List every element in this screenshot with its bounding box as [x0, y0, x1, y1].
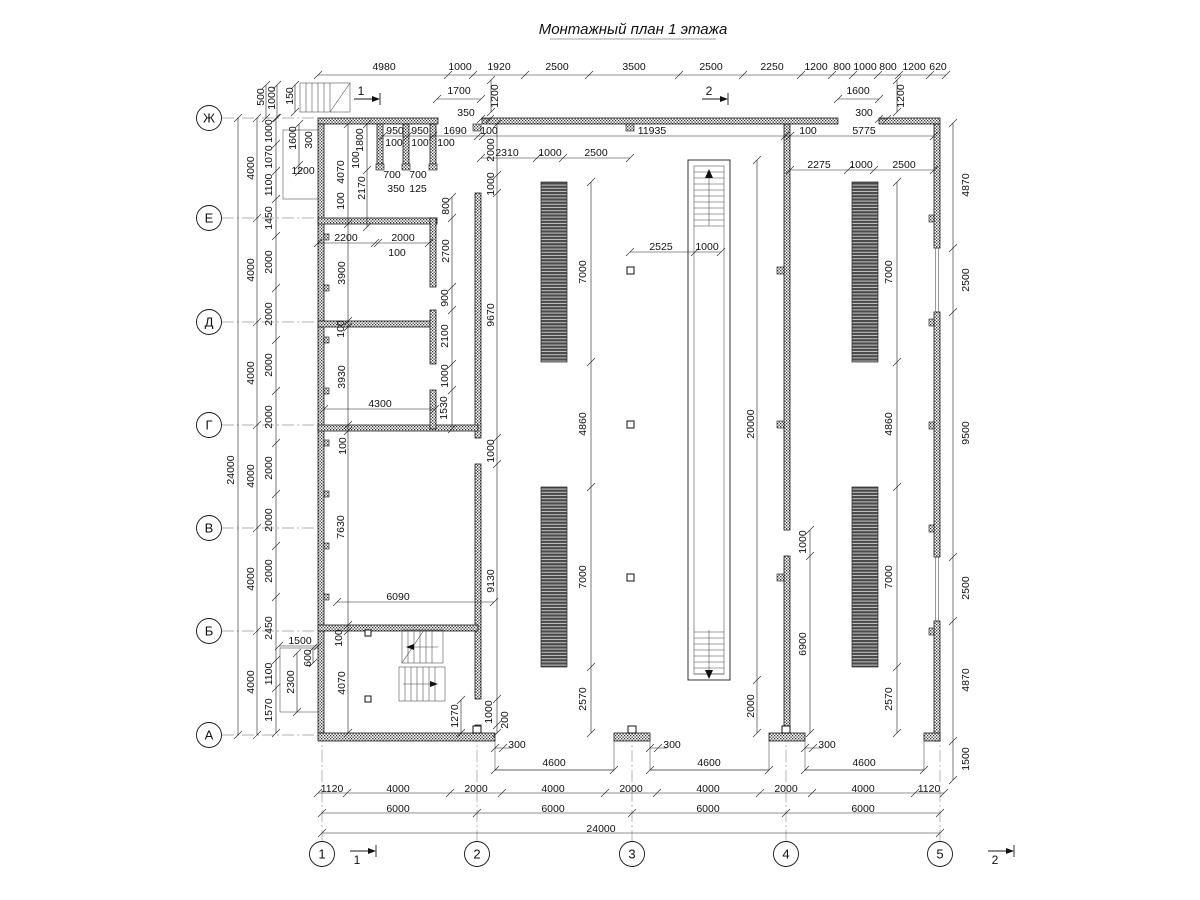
dim-label: 1000 — [485, 172, 497, 196]
dim-label: 4300 — [368, 398, 392, 410]
dim-label: 1200 — [489, 84, 501, 108]
dim-label: 100 — [337, 437, 349, 455]
dim-label: 300 — [508, 739, 526, 751]
dim-label: 950 — [386, 125, 404, 137]
dim-label: 1000 — [448, 61, 472, 73]
dim-label: 3900 — [336, 261, 348, 285]
dim-label: 2500 — [960, 268, 972, 292]
dim-label: 1000 — [483, 700, 495, 724]
pilasters — [324, 124, 934, 635]
dim-label: 100 — [350, 151, 362, 169]
dim-label: 1530 — [438, 396, 450, 420]
dim-label: 2100 — [439, 324, 451, 348]
floor-plan-canvas: Монтажный план 1 этажа — [0, 0, 1200, 900]
dim-label: 4070 — [336, 671, 348, 695]
axis-row-Б-label: Б — [205, 624, 214, 639]
dim-label: 1450 — [263, 206, 275, 230]
stair-down-arrow — [705, 670, 713, 679]
storage-racks — [541, 182, 878, 667]
section-mark-1-bottom: 1 — [350, 845, 376, 867]
dim-label: 7000 — [577, 565, 589, 589]
dim-label: 300 — [303, 131, 315, 149]
dim-label: 7000 — [883, 260, 895, 284]
dim-label: 6000 — [696, 803, 720, 815]
dim-label: 2500 — [584, 147, 608, 159]
rack-left-upper — [541, 182, 567, 362]
axis-col-4-label: 4 — [782, 847, 789, 862]
dim-label: 2500 — [699, 61, 723, 73]
dim-label: 2450 — [263, 616, 275, 640]
dim-label: 2170 — [356, 176, 368, 200]
page-title: Монтажный план 1 этажа — [539, 21, 728, 38]
section-label: 2 — [992, 853, 999, 867]
dim-label: 20000 — [745, 409, 757, 438]
dim-label: 100 — [388, 247, 406, 259]
dim-label: 4070 — [335, 160, 347, 184]
annex-outlines — [280, 130, 318, 712]
dim-label: 4000 — [245, 567, 257, 591]
dim-label: 1000 — [849, 159, 873, 171]
dim-label: 100 — [799, 125, 817, 137]
dim-label: 800 — [833, 61, 851, 73]
dim-label: 200 — [499, 711, 511, 729]
dim-label: 2310 — [495, 147, 519, 159]
dim-label: 2250 — [760, 61, 784, 73]
dim-label: 1070 — [263, 145, 275, 169]
rack-right-upper — [852, 182, 878, 362]
dim-label: 100 — [437, 137, 455, 149]
dim-label: 2300 — [285, 670, 297, 694]
dimension-labels: 4980100019202500350025002250120080010008… — [225, 61, 972, 835]
dim-label: 1200 — [895, 84, 907, 108]
dim-label: 1000 — [266, 86, 278, 110]
internal-stair — [399, 630, 445, 701]
dim-label: 100 — [411, 137, 429, 149]
dim-label: 6000 — [541, 803, 565, 815]
dim-label: 11935 — [638, 125, 667, 137]
dim-label: 2700 — [440, 239, 452, 263]
dim-label: 4000 — [245, 464, 257, 488]
axis-row-Е-label: Е — [205, 211, 214, 226]
dim-label: 4600 — [852, 757, 876, 769]
dim-label: 2000 — [485, 138, 497, 162]
central-shaft — [688, 160, 730, 680]
axis-bubbles: ЖЕДГВБА12345 — [197, 106, 953, 867]
dim-label: 2000 — [263, 456, 275, 480]
dim-label: 4870 — [960, 668, 972, 692]
dim-label: 300 — [855, 107, 873, 119]
dim-label: 5775 — [852, 125, 876, 137]
dim-label: 1200 — [902, 61, 926, 73]
dim-label: 300 — [663, 739, 681, 751]
dim-label: 2000 — [263, 508, 275, 532]
dim-label: 4600 — [697, 757, 721, 769]
dim-label: 100 — [333, 629, 345, 647]
dim-label: 2570 — [577, 687, 589, 711]
axis-row-А-label: А — [205, 728, 214, 743]
dim-label: 100 — [335, 192, 347, 210]
dim-label: 2000 — [263, 250, 275, 274]
dim-label: 1120 — [321, 783, 344, 795]
dim-label: 3500 — [622, 61, 646, 73]
dim-label: 4000 — [245, 156, 257, 180]
rack-left-lower — [541, 487, 567, 667]
dim-label: 800 — [879, 61, 897, 73]
dim-label: 1000 — [695, 241, 719, 253]
dim-label: 620 — [929, 61, 947, 73]
dim-label: 700 — [383, 169, 401, 181]
axis-col-3-label: 3 — [628, 847, 635, 862]
dim-label: 100 — [335, 320, 347, 338]
dim-label: 100 — [480, 125, 498, 137]
dim-label: 6900 — [797, 632, 809, 656]
dim-label: 2500 — [892, 159, 916, 171]
dim-label: 4870 — [960, 173, 972, 197]
dim-label: 1700 — [447, 85, 471, 97]
dim-label: 3930 — [336, 365, 348, 389]
dim-label: 4000 — [851, 783, 875, 795]
dim-label: 1000 — [853, 61, 877, 73]
section-mark-2-top: 2 — [702, 84, 728, 105]
dim-label: 7000 — [577, 260, 589, 284]
dim-label: 4600 — [542, 757, 566, 769]
axis-col-2-label: 2 — [473, 847, 480, 862]
dim-label: 2570 — [883, 687, 895, 711]
stair-up-arrow — [705, 169, 713, 178]
dim-label: 350 — [457, 107, 475, 119]
section-label: 1 — [354, 853, 361, 867]
dim-label: 1270 — [449, 704, 461, 728]
dim-label: 4980 — [372, 61, 396, 73]
dim-label: 2000 — [745, 694, 757, 718]
dim-label: 1500 — [960, 747, 972, 771]
dim-label: 1000 — [485, 439, 497, 463]
dim-label: 2000 — [263, 405, 275, 429]
dim-label: 24000 — [586, 823, 615, 835]
dim-label: 2000 — [774, 783, 798, 795]
dim-label: 1920 — [487, 61, 511, 73]
dim-label: 4000 — [541, 783, 565, 795]
dim-label: 1200 — [291, 165, 315, 177]
section-mark-2-bottom: 2 — [988, 845, 1014, 867]
dim-label: 4860 — [577, 412, 589, 436]
axis-row-Г-label: Г — [205, 418, 212, 433]
dim-label: 2200 — [334, 232, 358, 244]
dim-label: 2000 — [263, 353, 275, 377]
dim-label: 2000 — [263, 302, 275, 326]
dim-label: 1100 — [263, 174, 275, 197]
rack-right-lower — [852, 487, 878, 667]
external-stair — [300, 83, 350, 112]
section-label: 2 — [706, 84, 713, 98]
drawing-sheet: Монтажный план 1 этажа — [0, 0, 1200, 900]
dim-label: 2000 — [619, 783, 643, 795]
dim-label: 1000 — [263, 119, 275, 143]
dim-label: 9670 — [485, 303, 497, 327]
dim-label: 800 — [440, 197, 452, 215]
dim-label: 350 — [387, 183, 405, 195]
dim-label: 1570 — [263, 698, 275, 722]
dim-label: 700 — [409, 169, 427, 181]
dim-label: 950 — [411, 125, 429, 137]
dim-label: 1120 — [918, 783, 941, 795]
dim-label: 2525 — [649, 241, 673, 253]
dim-label: 2275 — [807, 159, 831, 171]
dim-label: 1800 — [354, 128, 366, 152]
dim-label: 2000 — [391, 232, 415, 244]
dim-label: 6000 — [386, 803, 410, 815]
dim-label: 2500 — [960, 576, 972, 600]
dim-label: 1000 — [797, 530, 809, 554]
dim-label: 100 — [385, 137, 403, 149]
dim-label: 900 — [439, 289, 451, 307]
dim-label: 7000 — [883, 565, 895, 589]
axis-row-Ж-label: Ж — [203, 111, 215, 126]
section-mark-1-top: 1 — [354, 84, 380, 105]
dim-label: 4000 — [696, 783, 720, 795]
dim-label: 2000 — [263, 559, 275, 583]
dim-label: 24000 — [225, 455, 237, 484]
axis-col-1-label: 1 — [318, 847, 325, 862]
dim-label: 300 — [818, 739, 836, 751]
dim-label: 9130 — [485, 569, 497, 593]
dim-label: 150 — [284, 87, 296, 105]
dim-label: 600 — [302, 649, 314, 667]
dim-label: 4000 — [245, 670, 257, 694]
dim-label: 4000 — [245, 258, 257, 282]
dim-label: 1200 — [804, 61, 828, 73]
axis-col-5-label: 5 — [936, 847, 943, 862]
dim-label: 2500 — [545, 61, 569, 73]
axis-row-Д-label: Д — [205, 315, 214, 330]
dim-label: 1100 — [263, 663, 275, 686]
dim-label: 1690 — [443, 125, 467, 137]
dim-label: 1000 — [538, 147, 562, 159]
section-label: 1 — [358, 84, 365, 98]
dim-label: 125 — [409, 183, 427, 195]
dim-label: 1500 — [288, 635, 312, 647]
drawing-title: Монтажный план 1 этажа — [539, 21, 728, 39]
dim-label: 9500 — [960, 421, 972, 445]
dim-label: 2000 — [464, 783, 488, 795]
dim-label: 7630 — [335, 515, 347, 539]
dim-label: 1000 — [439, 364, 451, 388]
dim-label: 4860 — [883, 412, 895, 436]
dim-label: 6000 — [851, 803, 875, 815]
dim-label: 1600 — [287, 126, 299, 150]
dim-label: 4000 — [245, 361, 257, 385]
dim-label: 4000 — [386, 783, 410, 795]
dim-label: 6090 — [386, 591, 410, 603]
dim-label: 1600 — [846, 85, 870, 97]
axis-row-В-label: В — [205, 521, 214, 536]
